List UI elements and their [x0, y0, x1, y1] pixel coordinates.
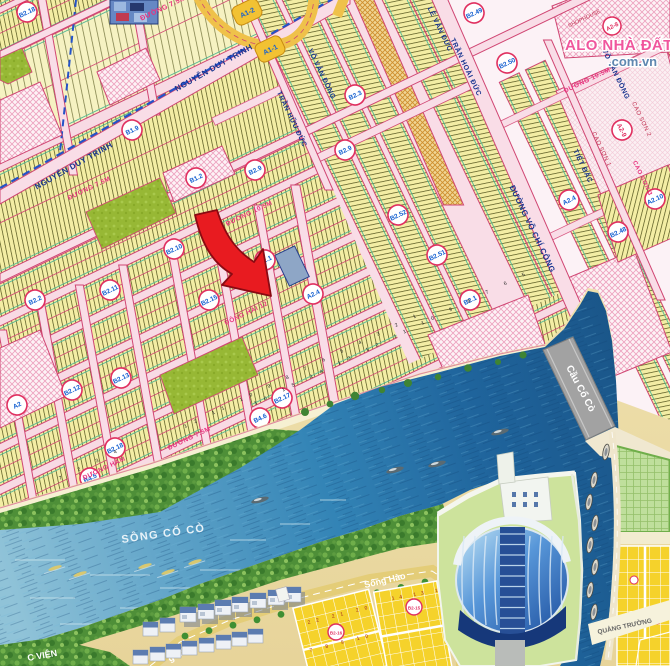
svg-text:ALO NHÀ ĐẤT: ALO NHÀ ĐẤT — [565, 37, 670, 54]
svg-text:B2-16: B2-16 — [330, 631, 343, 636]
svg-text:B2-15: B2-15 — [408, 606, 421, 611]
svg-text:.com.vn: .com.vn — [608, 54, 657, 69]
